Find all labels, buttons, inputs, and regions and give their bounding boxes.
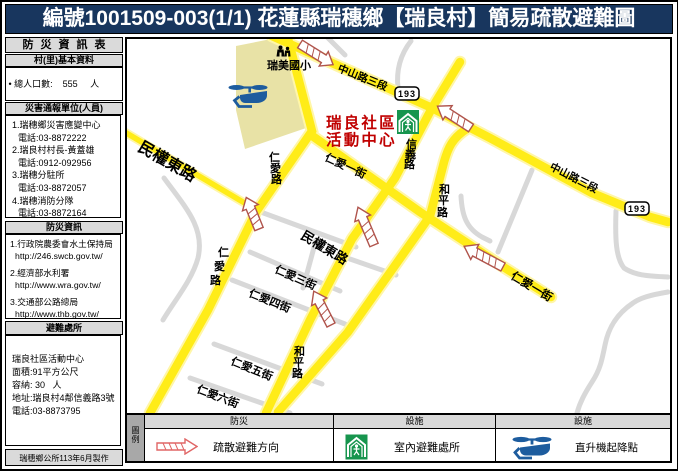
svg-text:愛: 愛: [214, 259, 225, 273]
svg-text:路: 路: [210, 273, 222, 287]
svg-text:路: 路: [437, 205, 449, 219]
svg-text:平: 平: [438, 194, 449, 207]
svg-text:和: 和: [294, 344, 305, 358]
svg-text:路: 路: [292, 366, 304, 380]
svg-text:瑞美國小: 瑞美國小: [267, 58, 311, 72]
svg-text:活動中心: 活動中心: [326, 130, 397, 149]
svg-text:愛: 愛: [270, 161, 281, 175]
svg-text:瑞良社區: 瑞良社區: [326, 113, 397, 132]
svg-text:和: 和: [439, 182, 450, 196]
svg-text:仁: 仁: [269, 150, 280, 164]
svg-text:路: 路: [404, 157, 416, 171]
svg-text:仁: 仁: [218, 245, 229, 259]
svg-text:193: 193: [628, 204, 646, 214]
svg-text:193: 193: [398, 89, 416, 99]
svg-text:路: 路: [271, 172, 283, 186]
